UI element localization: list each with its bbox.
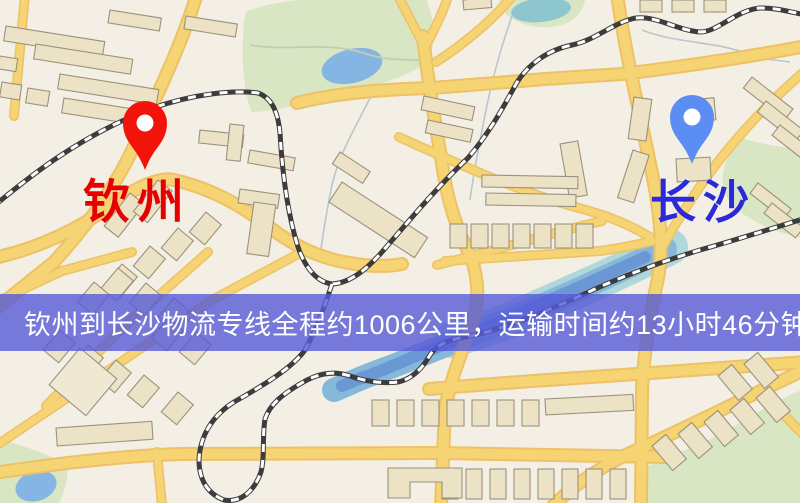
map-viewport[interactable]: 钦州 长沙 钦州到长沙物流专线全程约1006公里，运输时间约13小时46分钟. bbox=[0, 0, 800, 503]
qinzhou-pin-icon[interactable] bbox=[121, 100, 169, 172]
route-info-banner: 钦州到长沙物流专线全程约1006公里，运输时间约13小时46分钟. bbox=[0, 294, 800, 351]
changsha-label: 长沙 bbox=[618, 179, 788, 225]
route-info-text: 钦州到长沙物流专线全程约1006公里，运输时间约13小时46分钟. bbox=[0, 303, 800, 342]
map-art bbox=[0, 0, 800, 503]
qinzhou-label: 钦州 bbox=[52, 178, 222, 225]
changsha-pin-icon[interactable] bbox=[668, 94, 716, 166]
